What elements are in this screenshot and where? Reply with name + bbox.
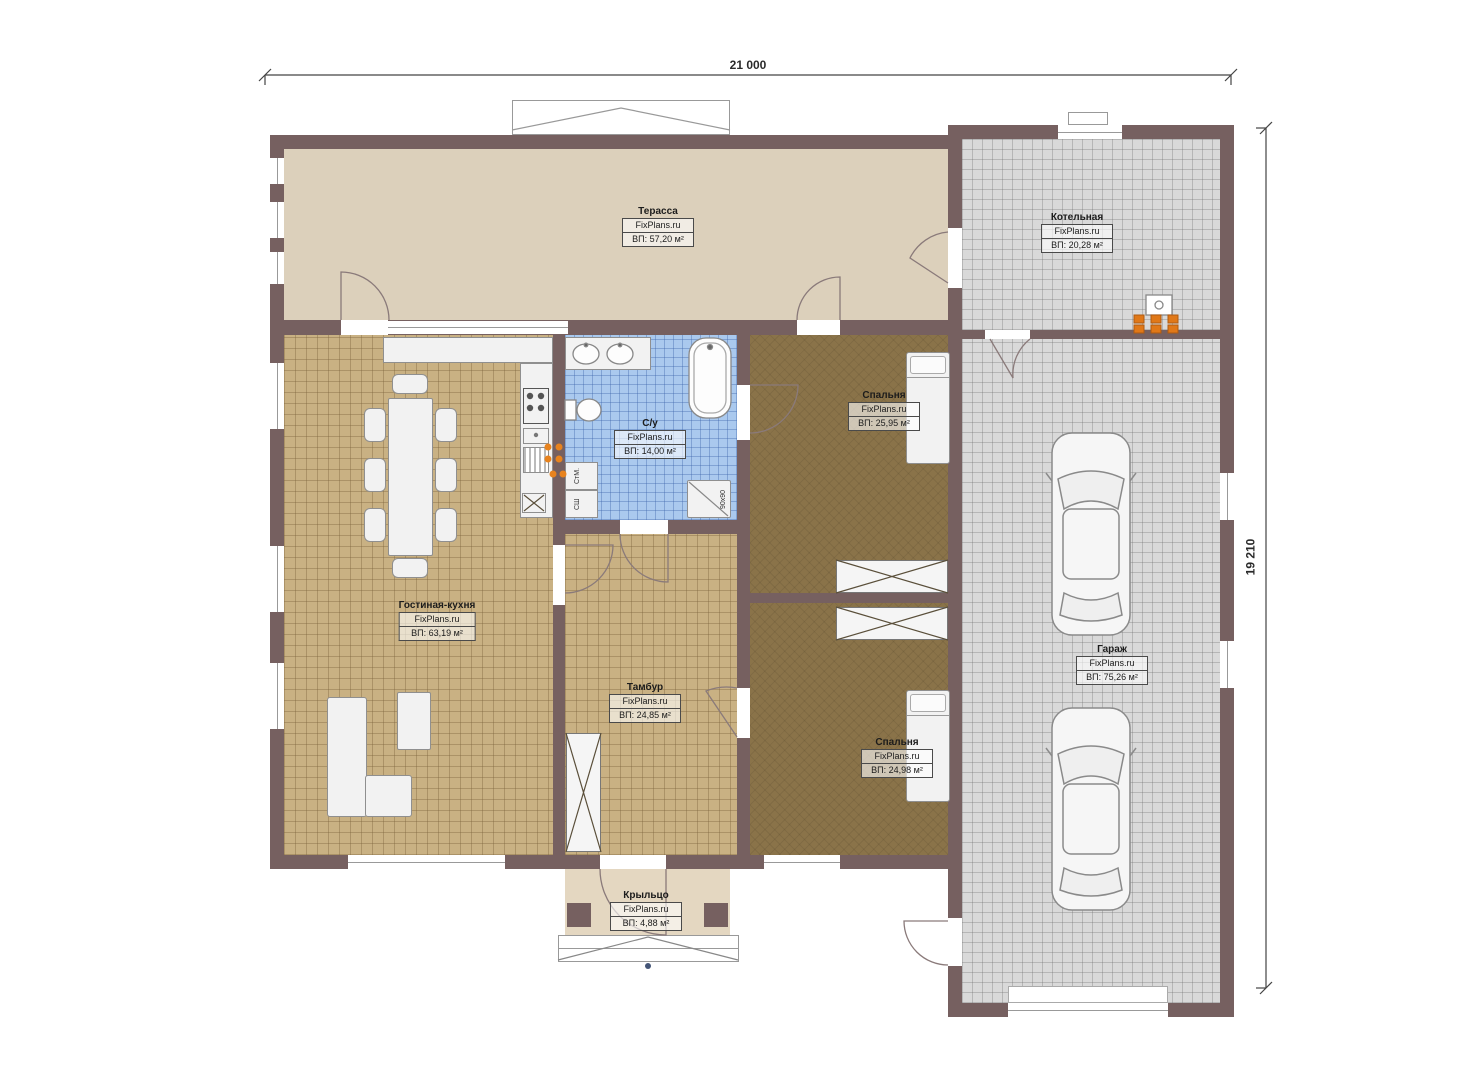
wardrobe-bedroom2 — [836, 607, 948, 640]
room-label-living-kitchen: Гостиная-кухня FixPlans.ru ВП: 63,19 м² — [399, 600, 476, 641]
room-label-boiler: Котельная FixPlans.ru ВП: 20,28 м² — [1041, 212, 1113, 253]
terrace-interior-window — [388, 321, 568, 334]
watermark: FixPlans.ru — [610, 902, 682, 917]
room-label-terrace: Терасса FixPlans.ru ВП: 57,20 м² — [622, 206, 694, 247]
room-name: Спальня — [848, 390, 920, 401]
dining-chair — [364, 458, 386, 492]
bed-line — [907, 715, 949, 716]
wardrobe-vestibule — [566, 733, 601, 852]
watermark: FixPlans.ru — [1041, 224, 1113, 239]
room-area: ВП: 63,19 м² — [399, 627, 476, 641]
wing-right-wall — [1220, 125, 1234, 1017]
bedroom2-door-opening — [737, 688, 750, 738]
dining-chair — [435, 408, 457, 442]
room-name: Крыльцо — [610, 890, 682, 901]
bedrooms-divider-wall — [750, 593, 948, 603]
garage-window — [1220, 473, 1234, 520]
living-window — [270, 663, 284, 729]
garage-door-threshold — [1008, 986, 1168, 1003]
room-label-bedroom1: Спальня FixPlans.ru ВП: 25,95 м² — [848, 390, 920, 431]
watermark: FixPlans.ru — [861, 749, 933, 764]
room-name: Терасса — [622, 206, 694, 217]
room-area: ВП: 14,00 м² — [614, 445, 686, 459]
garage-window — [1220, 641, 1234, 688]
dining-chair — [364, 408, 386, 442]
room-area: ВП: 24,98 м² — [861, 764, 933, 778]
dining-chair — [392, 374, 428, 394]
coffee-table — [397, 692, 431, 750]
room-area: ВП: 24,85 м² — [609, 709, 681, 723]
terrace-living-door-opening — [341, 320, 388, 335]
room-label-porch: Крыльцо FixPlans.ru ВП: 4,88 м² — [610, 890, 682, 931]
terrace-steps — [512, 100, 730, 135]
entrance-door-opening — [600, 855, 666, 869]
kitchen-cabinet — [522, 493, 546, 513]
bathroom-door-opening — [620, 520, 668, 534]
terrace-window — [270, 158, 284, 184]
room-name: Тамбур — [609, 682, 681, 693]
bed-line — [907, 377, 949, 378]
width-dimension-label: 21 000 — [730, 58, 767, 72]
room-label-bedroom2: Спальня FixPlans.ru ВП: 24,98 м² — [861, 737, 933, 778]
watermark: FixPlans.ru — [622, 218, 694, 233]
dining-chair — [364, 508, 386, 542]
room-area: ВП: 75,26 м² — [1076, 671, 1148, 685]
bedroom2-window — [764, 855, 840, 869]
living-vestibule-door-opening — [553, 545, 565, 605]
sofa — [327, 697, 367, 817]
room-name: Котельная — [1041, 212, 1113, 223]
porch-steps — [558, 935, 739, 962]
room-area: ВП: 25,95 м² — [848, 417, 920, 431]
room-area: ВП: 4,88 м² — [610, 917, 682, 931]
boiler-garage-door-opening — [985, 330, 1030, 339]
room-name: Гостиная-кухня — [399, 600, 476, 611]
living-window — [270, 363, 284, 429]
garage-door-opening — [1008, 1003, 1168, 1017]
watermark: FixPlans.ru — [1076, 656, 1148, 671]
watermark: FixPlans.ru — [614, 430, 686, 445]
dining-chair — [435, 508, 457, 542]
room-label-bathroom: С/у FixPlans.ru ВП: 14,00 м² — [614, 418, 686, 459]
watermark: FixPlans.ru — [399, 612, 476, 627]
room-area: ВП: 20,28 м² — [1041, 239, 1113, 253]
floor-plan: СтМ. СШ 90x90 — [0, 0, 1474, 1080]
height-dimension-label: 19 210 — [1243, 539, 1257, 576]
living-window — [270, 546, 284, 612]
washing-machine — [565, 462, 598, 490]
main-left-wall — [270, 135, 284, 869]
kitchen-sink — [523, 428, 549, 444]
dining-chair — [392, 558, 428, 578]
dining-chair — [435, 458, 457, 492]
terrace-bedroom1-door-opening — [797, 320, 840, 335]
drying-cabinet — [565, 490, 598, 518]
terrace-floor — [284, 149, 948, 320]
dishwasher — [523, 447, 549, 473]
room-label-garage: Гараж FixPlans.ru ВП: 75,26 м² — [1076, 644, 1148, 685]
stove — [523, 388, 549, 424]
boiler-window — [1058, 125, 1122, 139]
kitchen-counter-top — [383, 337, 553, 363]
watermark: FixPlans.ru — [848, 402, 920, 417]
watermark: FixPlans.ru — [609, 694, 681, 709]
room-name: С/у — [614, 418, 686, 429]
main-top-wall — [270, 135, 962, 149]
porch-post — [567, 903, 591, 927]
washing-machine-label: СтМ. — [574, 465, 581, 487]
pillow — [910, 694, 946, 712]
terrace-wing-door-opening — [948, 228, 962, 288]
room-label-vestibule: Тамбур FixPlans.ru ВП: 24,85 м² — [609, 682, 681, 723]
garage-side-door-opening — [948, 918, 962, 966]
terrace-window — [270, 202, 284, 238]
room-name: Спальня — [861, 737, 933, 748]
wardrobe-bedroom1 — [836, 560, 948, 593]
porch-post — [704, 903, 728, 927]
room-name: Гараж — [1076, 644, 1148, 655]
drying-cabinet-label: СШ — [574, 494, 581, 514]
living-south-window — [348, 855, 505, 869]
bathroom-sink-counter — [565, 337, 651, 370]
bedroom1-door-opening — [737, 385, 750, 440]
room-area: ВП: 57,20 м² — [622, 233, 694, 247]
sofa — [365, 775, 412, 817]
steps-marker — [645, 963, 651, 969]
pillow — [910, 356, 946, 374]
terrace-window — [270, 252, 284, 284]
chimney-box — [1068, 112, 1108, 125]
dining-table — [388, 398, 433, 556]
shower-size-label: 90x90 — [720, 484, 727, 514]
